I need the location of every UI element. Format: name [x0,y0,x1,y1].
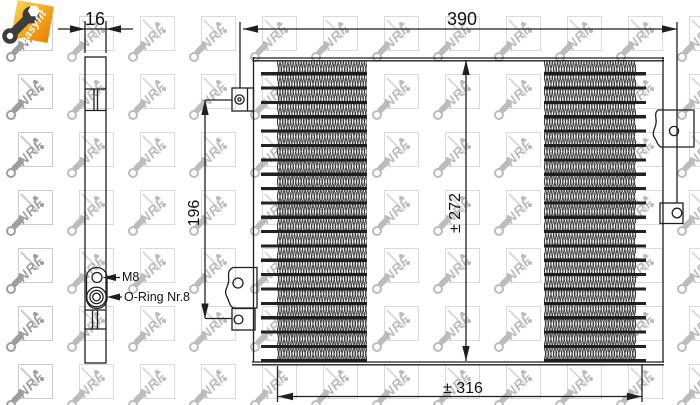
fitting-label-m8: M8 [122,270,139,284]
dim-label-272: ± 272 [447,183,465,243]
dim-label-196: 196 [186,183,204,243]
fitting-label-oring: O-Ring Nr.8 [124,290,190,304]
dim-label-390: 390 [427,9,497,30]
bracket-bottom-left [226,268,257,331]
bracket-right [653,110,694,224]
bracket-top-left [232,88,254,111]
dimension-390 [240,22,677,203]
condenser-drawing-canvas: NRFNRFNRFNRFNRFNRFNRFNRFNRFNRFNRFNRFNRFN… [0,0,700,405]
easyfit-badge: easyfit [0,0,64,64]
condenser-linework [0,0,700,405]
dim-label-16: 16 [65,9,125,30]
side-view [85,57,107,363]
m8-port [92,273,102,283]
dim-label-316: ± 316 [428,380,498,398]
